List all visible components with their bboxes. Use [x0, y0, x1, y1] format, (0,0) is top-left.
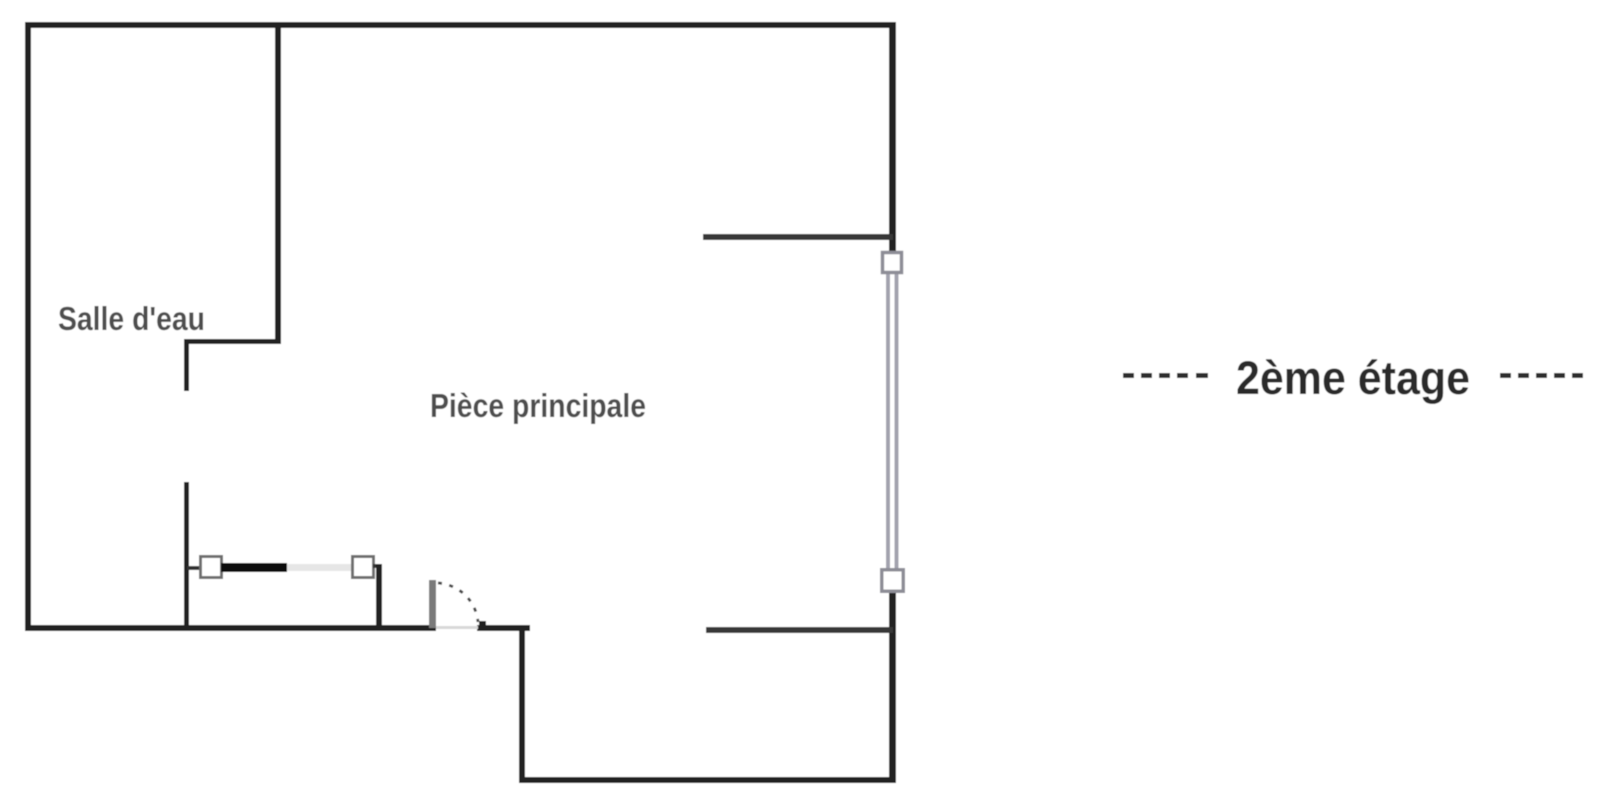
- svg-text:Pièce principale: Pièce principale: [430, 387, 646, 424]
- svg-text:Salle d'eau: Salle d'eau: [58, 300, 205, 337]
- svg-text:2ème étage: 2ème étage: [1236, 351, 1470, 404]
